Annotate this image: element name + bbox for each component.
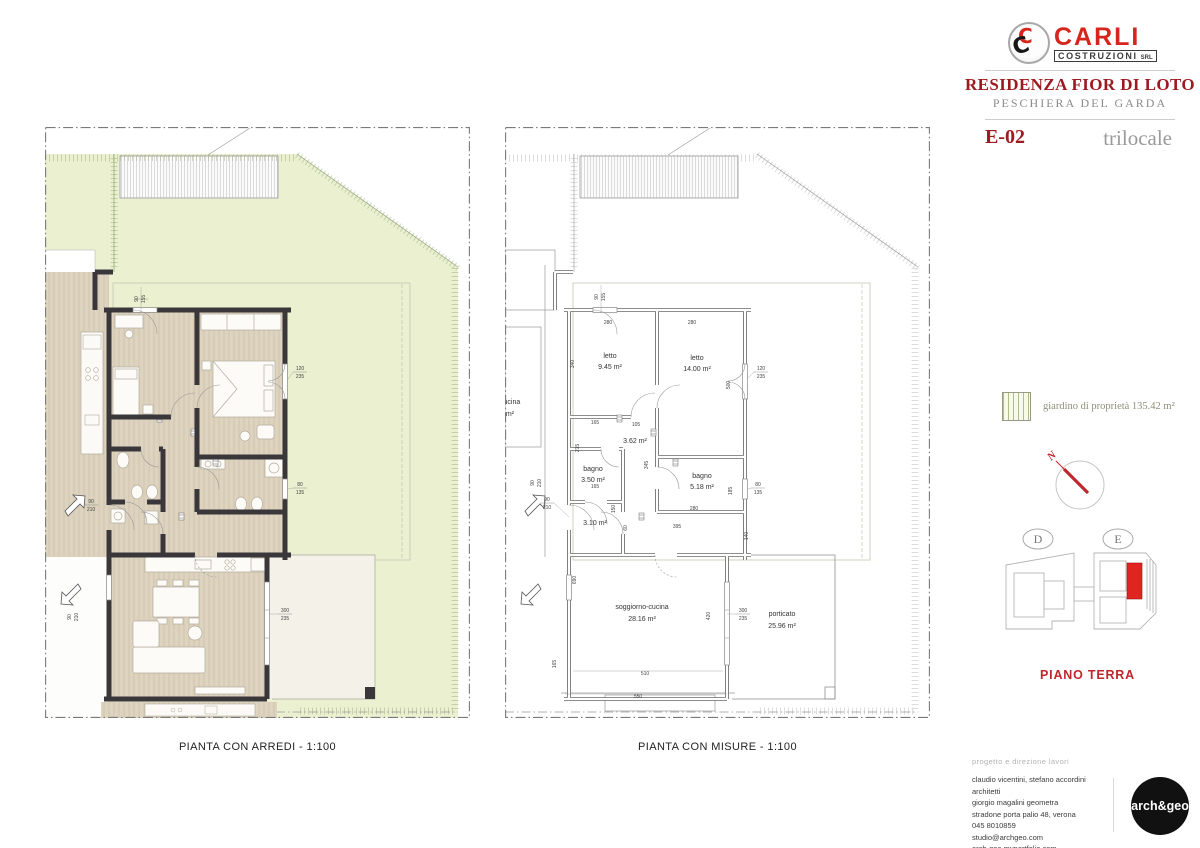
svg-text:165: 165	[591, 484, 600, 490]
svg-text:420: 420	[706, 612, 712, 621]
svg-text:395: 395	[673, 524, 682, 530]
company-logo: C C CARLI COSTRUZIONI SRL	[1008, 20, 1176, 66]
svg-text:5.18 m²: 5.18 m²	[690, 484, 714, 491]
plan-arredi: 90 155 120 235 80 135 300 235 90 210 90 …	[45, 127, 470, 718]
neighbor-counter	[145, 704, 255, 716]
brand-name: CARLI	[1054, 25, 1157, 49]
unit-type: trilocale	[1032, 126, 1172, 151]
svg-text:80: 80	[297, 482, 303, 488]
pergola	[580, 156, 738, 198]
credits-lines: claudio vicentini, stefano accordini arc…	[972, 774, 1112, 848]
north-arrow: N	[1038, 443, 1114, 519]
porticato-floor	[267, 555, 375, 699]
svg-text:soggiorno-cucina: soggiorno-cucina	[615, 604, 668, 611]
neighbor-kitchen	[81, 332, 103, 454]
svg-text:280: 280	[690, 506, 699, 512]
svg-text:340: 340	[570, 360, 576, 369]
credit-line: stradone porta palio 48, verona	[972, 809, 1112, 821]
svg-text:235: 235	[296, 374, 305, 380]
garden-legend-label: giardino di proprietà 135.42 m²	[1043, 401, 1183, 412]
floor-label: PIANO TERRA	[1000, 668, 1175, 682]
svg-text:235: 235	[757, 374, 766, 380]
brand-srl-text: SRL	[1141, 55, 1153, 61]
svg-text:215: 215	[575, 444, 581, 453]
divider	[985, 70, 1175, 71]
svg-text:210: 210	[537, 479, 543, 488]
porticato-pillar	[365, 687, 375, 699]
archgeo-logo: arch&geo	[1131, 777, 1189, 835]
svg-text:letto: letto	[603, 353, 616, 360]
divider	[985, 119, 1175, 120]
svg-text:120: 120	[757, 366, 766, 372]
garden-hatch-swatch	[1002, 392, 1031, 421]
svg-text:3.50 m²: 3.50 m²	[581, 477, 605, 484]
svg-text:210: 210	[74, 613, 80, 622]
svg-text:165: 165	[552, 660, 558, 669]
svg-text:510: 510	[641, 671, 650, 677]
svg-text:bagno: bagno	[692, 473, 712, 480]
svg-text:letto: letto	[690, 355, 703, 362]
svg-text:165: 165	[591, 420, 600, 426]
project-title: RESIDENZA FIOR DI LOTO	[960, 75, 1200, 95]
keyplan-building-d-label: D	[1034, 532, 1043, 546]
brand-sub-text: COSTRUZIONI	[1058, 51, 1138, 61]
svg-text:135: 135	[754, 490, 763, 496]
caption-misure: PIANTA CON MISURE - 1:100	[505, 741, 930, 753]
svg-text:28.16 m²: 28.16 m²	[628, 616, 656, 623]
credit-line: giorgio magalini geometra	[972, 797, 1112, 809]
credit-line: 045 8010859	[972, 820, 1112, 832]
svg-text:690: 690	[572, 576, 578, 585]
svg-text:210: 210	[543, 505, 552, 511]
project-location: PESCHIERA DEL GARDA	[960, 96, 1200, 111]
svg-text:155: 155	[601, 293, 607, 302]
svg-text:280: 280	[688, 320, 697, 326]
caption-arredi: PIANTA CON ARREDI - 1:100	[45, 741, 470, 753]
svg-text:1 m²: 1 m²	[505, 411, 515, 418]
divider	[1113, 778, 1114, 832]
svg-text:80: 80	[755, 482, 761, 488]
north-label: N	[1044, 448, 1059, 464]
credit-line: studio@archgeo.com	[972, 832, 1112, 844]
svg-text:14.00 m²: 14.00 m²	[683, 366, 711, 373]
svg-text:p-cucina: p-cucina	[505, 399, 520, 406]
key-plan: D E	[1000, 525, 1175, 660]
keyplan-building-e	[1094, 553, 1156, 629]
keyplan-building-d	[1006, 553, 1094, 629]
svg-text:bagno: bagno	[583, 466, 603, 473]
credit-line: claudio vicentini, stefano accordini arc…	[972, 774, 1112, 797]
svg-text:550: 550	[634, 694, 643, 700]
svg-text:210: 210	[87, 507, 96, 513]
pergola	[120, 156, 278, 198]
drawing-sheet: 90 155 120 235 80 135 300 235 90 210 90 …	[0, 0, 1200, 848]
svg-text:9.45 m²: 9.45 m²	[598, 364, 622, 371]
svg-text:185: 185	[728, 487, 734, 496]
svg-text:25.96 m²: 25.96 m²	[768, 623, 796, 630]
svg-text:90: 90	[544, 497, 550, 503]
svg-text:500: 500	[726, 381, 732, 390]
keyplan-building-e-label: E	[1114, 532, 1121, 546]
svg-text:235: 235	[739, 616, 748, 622]
svg-text:90: 90	[88, 499, 94, 505]
svg-text:90: 90	[530, 480, 536, 486]
svg-text:135: 135	[296, 490, 305, 496]
svg-text:235: 235	[281, 616, 290, 622]
svg-text:105: 105	[632, 422, 641, 428]
svg-text:90: 90	[594, 294, 600, 300]
keyplan-highlight-unit	[1127, 563, 1142, 599]
svg-text:3.10 m²: 3.10 m²	[583, 520, 607, 527]
svg-text:60: 60	[623, 525, 629, 531]
plan-misure: letto 9.45 m² letto 14.00 m² bagno 3.50 …	[505, 127, 930, 718]
svg-text:140: 140	[744, 532, 750, 541]
svg-text:150: 150	[611, 505, 617, 514]
credits-heading: progetto e direzione lavori	[972, 757, 1069, 766]
svg-text:90: 90	[67, 614, 73, 620]
svg-text:300: 300	[281, 608, 290, 614]
svg-text:120: 120	[296, 366, 305, 372]
unit-code: E-02	[985, 126, 1025, 149]
entry-patio	[45, 557, 107, 718]
svg-text:345: 345	[644, 461, 650, 470]
svg-text:300: 300	[739, 608, 748, 614]
svg-text:3.62 m²: 3.62 m²	[623, 438, 647, 445]
svg-text:porticato: porticato	[769, 611, 796, 618]
svg-text:280: 280	[604, 320, 613, 326]
garden-legend: giardino di proprietà 135.42 m²	[1002, 392, 1183, 421]
brand-subtitle: COSTRUZIONI SRL	[1054, 50, 1157, 62]
credit-line: arch-geo.myportfolio.com	[972, 843, 1112, 848]
carli-logo-icon: C C	[1008, 22, 1050, 64]
